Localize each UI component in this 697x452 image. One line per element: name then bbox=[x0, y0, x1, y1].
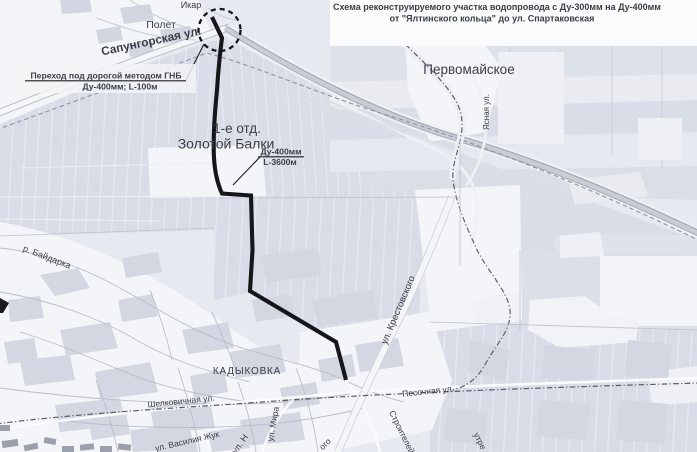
svg-text:Ду-400мм: Ду-400мм bbox=[261, 147, 302, 157]
svg-text:Первомайское: Первомайское bbox=[423, 62, 514, 77]
svg-text:Икар: Икар bbox=[181, 0, 202, 10]
svg-text:Ду-400мм; L-100м: Ду-400мм; L-100м bbox=[83, 82, 158, 92]
svg-text:от "Ялтинского кольца" до ул: от "Ялтинского кольца" до ул. Спартаковс… bbox=[390, 14, 595, 24]
svg-text:КАДЫКОВКА: КАДЫКОВКА bbox=[213, 366, 281, 377]
svg-text:Схема реконструируемого участк: Схема реконструируемого участка водопров… bbox=[333, 2, 661, 12]
svg-text:Ясная ул.: Ясная ул. bbox=[482, 94, 491, 130]
svg-text:1-е отд.: 1-е отд. bbox=[213, 121, 261, 136]
svg-text:Переход под дорогой методом ГН: Переход под дорогой методом ГНБ bbox=[30, 71, 181, 81]
svg-text:L-3600м: L-3600м bbox=[263, 157, 297, 167]
